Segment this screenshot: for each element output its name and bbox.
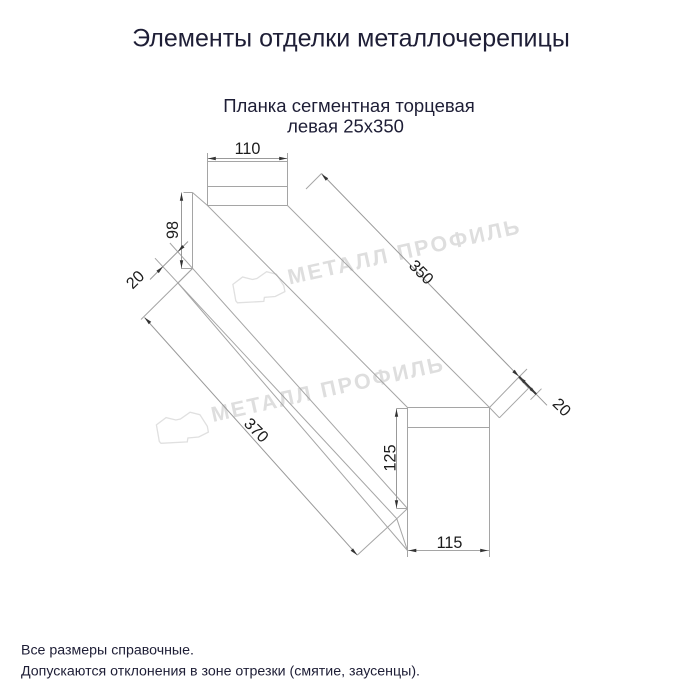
- svg-text:Элементы отделки металлочерепи: Элементы отделки металлочерепицы: [132, 25, 570, 53]
- svg-text:Планка сегментная торцевая: Планка сегментная торцевая: [223, 95, 475, 116]
- svg-text:левая 25x350: левая 25x350: [287, 116, 404, 137]
- svg-text:98: 98: [164, 221, 182, 239]
- svg-text:125: 125: [382, 444, 400, 471]
- svg-text:115: 115: [437, 534, 463, 552]
- svg-text:20: 20: [549, 395, 574, 420]
- svg-text:20: 20: [123, 267, 148, 292]
- svg-text:Допускаются отклонения в зоне: Допускаются отклонения в зоне отрезки (с…: [21, 664, 420, 680]
- svg-text:Все размеры справочные.: Все размеры справочные.: [21, 643, 194, 659]
- svg-text:110: 110: [235, 140, 261, 158]
- svg-text:МЕТАЛЛ ПРОФИЛЬ: МЕТАЛЛ ПРОФИЛЬ: [285, 214, 523, 289]
- svg-text:МЕТАЛЛ ПРОФИЛЬ: МЕТАЛЛ ПРОФИЛЬ: [209, 352, 447, 427]
